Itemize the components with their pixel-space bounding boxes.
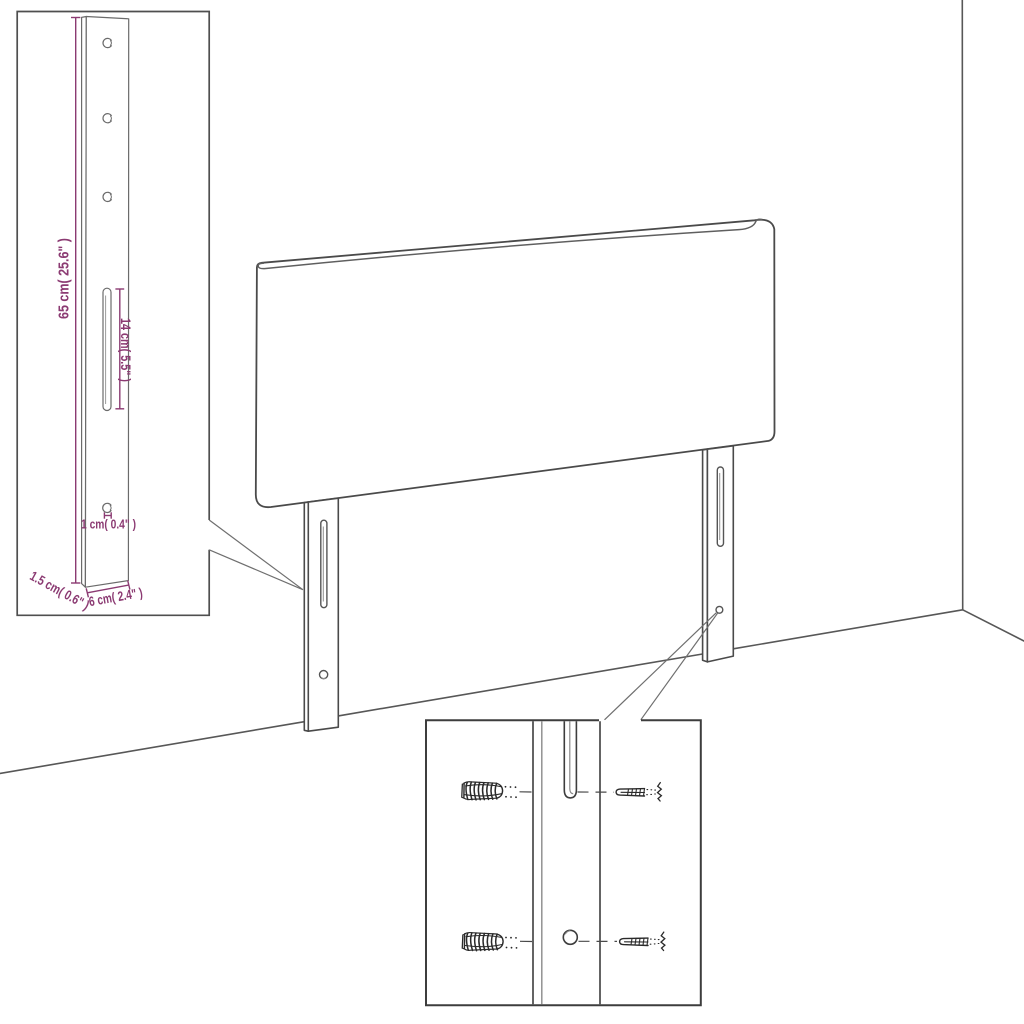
svg-text:1 cm( 0.4" ): 1 cm( 0.4" ) [81, 519, 136, 532]
svg-text:14 cm( 5.5" ): 14 cm( 5.5" ) [118, 318, 133, 382]
svg-text:65 cm( 25.6" ): 65 cm( 25.6" ) [55, 238, 71, 319]
